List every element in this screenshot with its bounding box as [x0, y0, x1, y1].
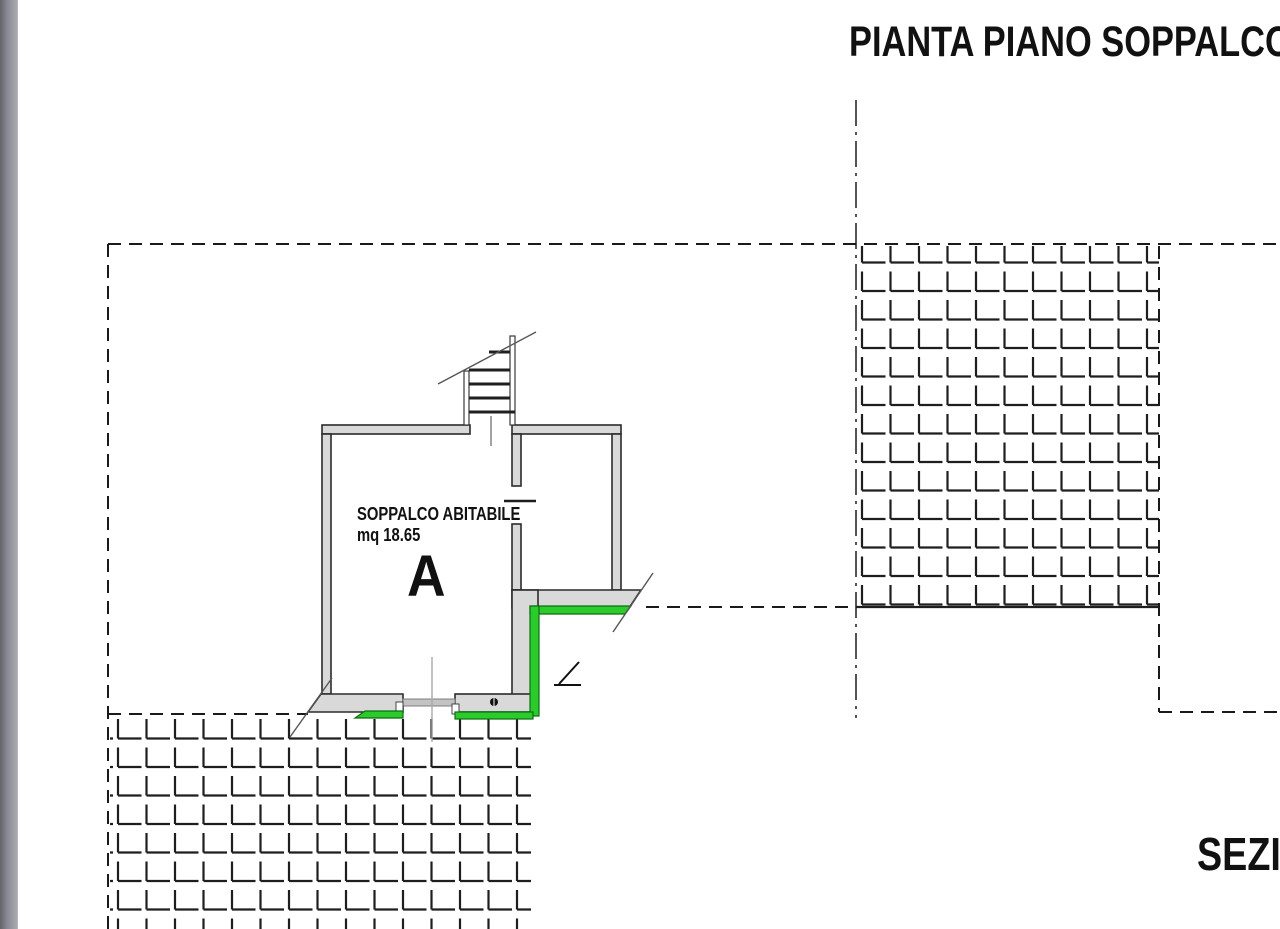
wall-marker-symbol: [490, 698, 498, 706]
section-title-partial: SEZIO: [1197, 831, 1280, 877]
room-a-walls: [308, 425, 641, 713]
plan-title: PIANTA PIANO SOPPALCO: [849, 21, 1280, 64]
roof-hatch-area-right: [856, 246, 1159, 607]
floor-plan-canvas: [0, 0, 1280, 929]
room-a-letter: A: [407, 548, 446, 606]
room-a-label: SOPPALCO ABITABILE: [357, 505, 520, 524]
room-a-area: mq 18.65: [357, 526, 420, 545]
stair-break-line: [438, 332, 536, 384]
angle-symbol: [559, 662, 579, 684]
roof-hatch-area-left: [110, 714, 531, 929]
